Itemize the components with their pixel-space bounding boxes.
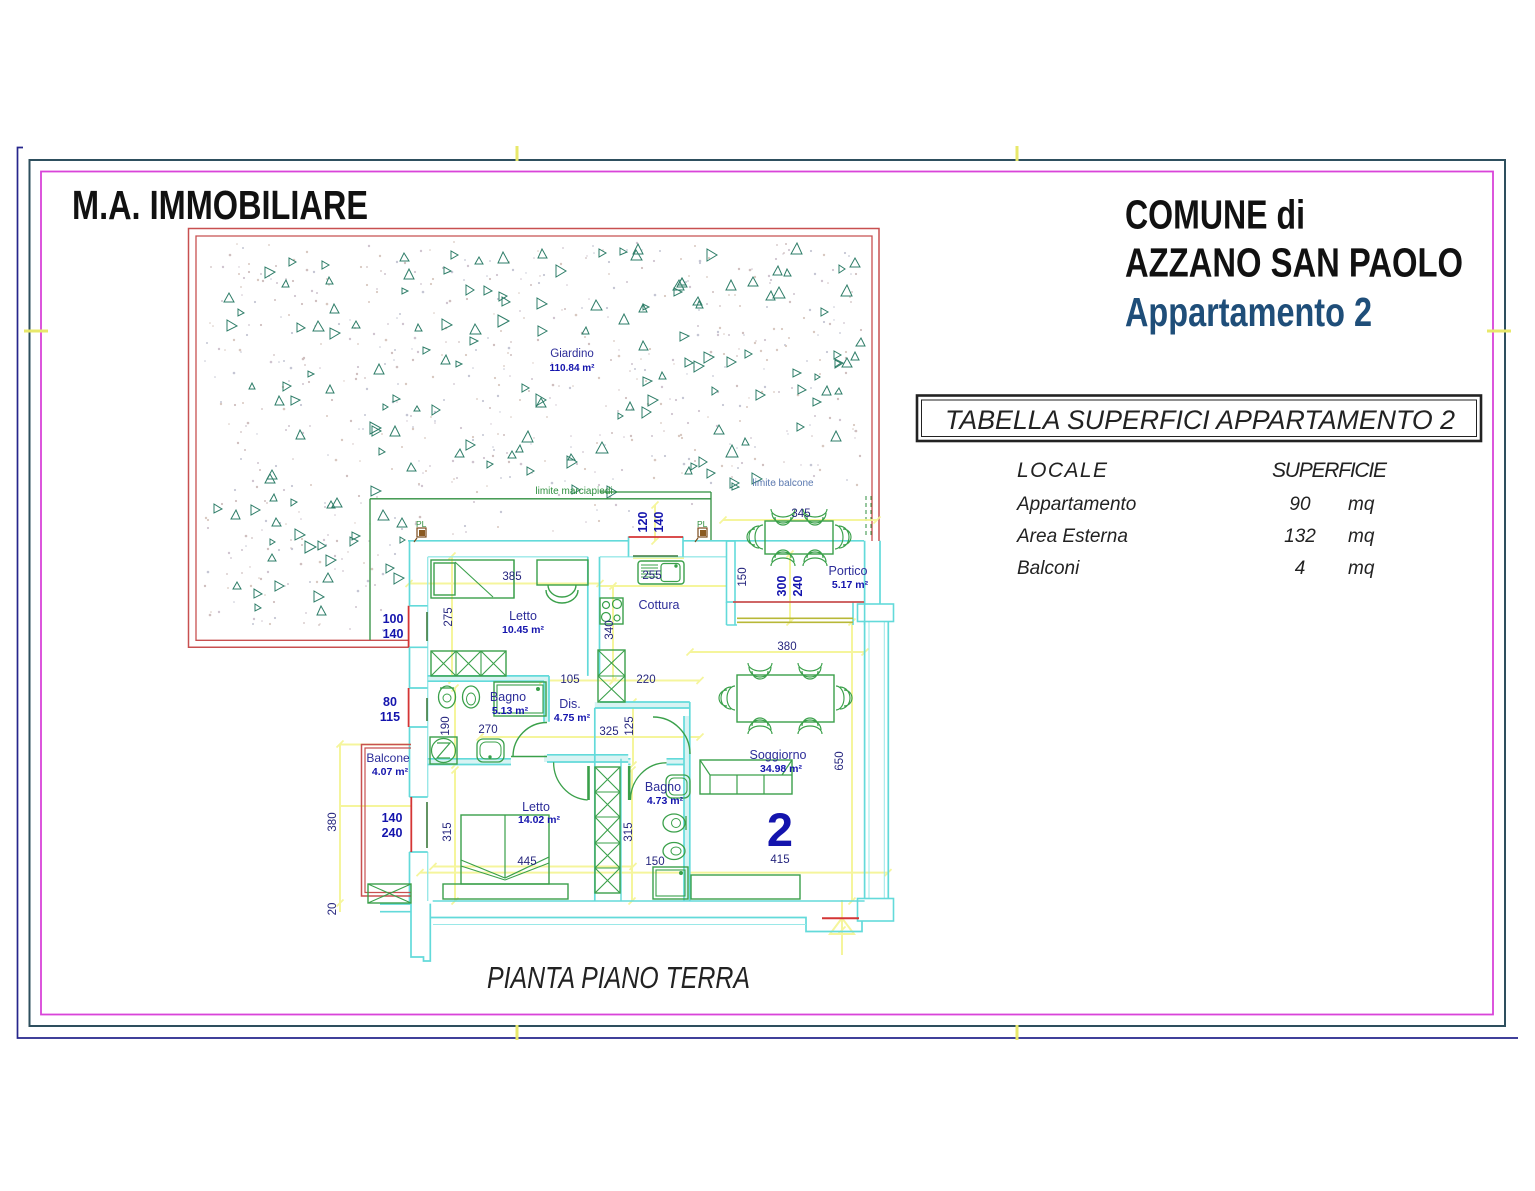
svg-text:315: 315: [623, 822, 635, 841]
svg-text:140: 140: [383, 627, 404, 641]
svg-text:Soggiorno: Soggiorno: [750, 748, 807, 762]
svg-text:Cottura: Cottura: [639, 598, 680, 612]
svg-text:4: 4: [1295, 558, 1306, 579]
svg-text:190: 190: [440, 716, 452, 735]
svg-text:mq: mq: [1348, 526, 1375, 547]
svg-text:5.13 m²: 5.13 m²: [492, 705, 529, 717]
svg-text:110.84 m²: 110.84 m²: [549, 363, 595, 374]
svg-text:80: 80: [383, 695, 397, 709]
svg-text:Dis.: Dis.: [559, 697, 581, 711]
svg-text:120: 120: [636, 512, 650, 533]
svg-text:220: 220: [636, 674, 655, 686]
svg-text:4.73 m²: 4.73 m²: [647, 795, 684, 807]
svg-text:380: 380: [327, 812, 339, 831]
svg-text:315: 315: [442, 822, 454, 841]
svg-text:275: 275: [443, 607, 455, 626]
svg-text:415: 415: [770, 854, 789, 866]
svg-text:140: 140: [382, 811, 403, 825]
svg-text:345: 345: [791, 508, 810, 520]
svg-text:100: 100: [383, 612, 404, 626]
svg-text:SUPERFICIE: SUPERFICIE: [1272, 459, 1388, 482]
svg-text:240: 240: [382, 826, 403, 840]
svg-text:105: 105: [560, 674, 579, 686]
svg-text:255: 255: [642, 570, 661, 582]
svg-text:TABELLA SUPERFICI APPARTAMENTO: TABELLA SUPERFICI APPARTAMENTO 2: [945, 405, 1455, 435]
svg-text:Balconi: Balconi: [1017, 558, 1080, 579]
svg-text:limite marciapiedi: limite marciapiedi: [535, 486, 612, 497]
svg-text:14.02 m²: 14.02 m²: [518, 814, 561, 826]
svg-text:115: 115: [380, 710, 400, 724]
svg-text:Appartamento: Appartamento: [1016, 494, 1136, 515]
svg-text:Appartamento 2: Appartamento 2: [1125, 289, 1372, 335]
svg-text:Portico: Portico: [829, 564, 868, 578]
svg-text:380: 380: [777, 641, 796, 653]
svg-text:270: 270: [478, 724, 497, 736]
svg-text:LOCALE: LOCALE: [1017, 459, 1108, 482]
svg-text:240: 240: [791, 576, 805, 597]
svg-text:34.98 m²: 34.98 m²: [760, 763, 803, 775]
svg-text:340: 340: [604, 620, 616, 639]
svg-text:PIANTA PIANO TERRA: PIANTA PIANO TERRA: [487, 960, 750, 995]
svg-text:Bagno: Bagno: [490, 690, 526, 704]
svg-text:20: 20: [327, 903, 339, 916]
svg-text:150: 150: [737, 567, 749, 586]
svg-text:150: 150: [645, 856, 664, 868]
svg-text:mq: mq: [1348, 558, 1375, 579]
svg-text:4.07 m²: 4.07 m²: [372, 766, 409, 778]
svg-text:Bagno: Bagno: [645, 780, 681, 794]
svg-text:mq: mq: [1348, 494, 1375, 515]
svg-text:4.75 m²: 4.75 m²: [554, 712, 591, 724]
svg-text:Letto: Letto: [509, 609, 537, 623]
svg-text:140: 140: [652, 512, 666, 533]
svg-text:limite balcone: limite balcone: [752, 478, 814, 489]
svg-text:445: 445: [517, 856, 536, 868]
svg-text:90: 90: [1289, 494, 1311, 515]
svg-text:COMUNE di: COMUNE di: [1125, 192, 1305, 238]
svg-text:325: 325: [599, 726, 618, 738]
svg-text:M.A. IMMOBILIARE: M.A. IMMOBILIARE: [72, 182, 368, 228]
svg-text:10.45 m²: 10.45 m²: [502, 624, 545, 636]
svg-text:Area Esterna: Area Esterna: [1016, 526, 1128, 547]
svg-text:AZZANO SAN PAOLO: AZZANO SAN PAOLO: [1125, 240, 1463, 286]
svg-text:Letto: Letto: [522, 800, 550, 814]
svg-text:Giardino: Giardino: [550, 348, 593, 360]
svg-text:5.17 m²: 5.17 m²: [832, 579, 869, 591]
svg-text:125: 125: [624, 716, 636, 735]
svg-text:385: 385: [502, 571, 521, 583]
svg-text:Balcone: Balcone: [366, 751, 410, 765]
svg-text:300: 300: [775, 576, 789, 597]
svg-text:2: 2: [767, 803, 793, 856]
svg-text:132: 132: [1284, 526, 1316, 547]
svg-text:650: 650: [834, 751, 846, 770]
